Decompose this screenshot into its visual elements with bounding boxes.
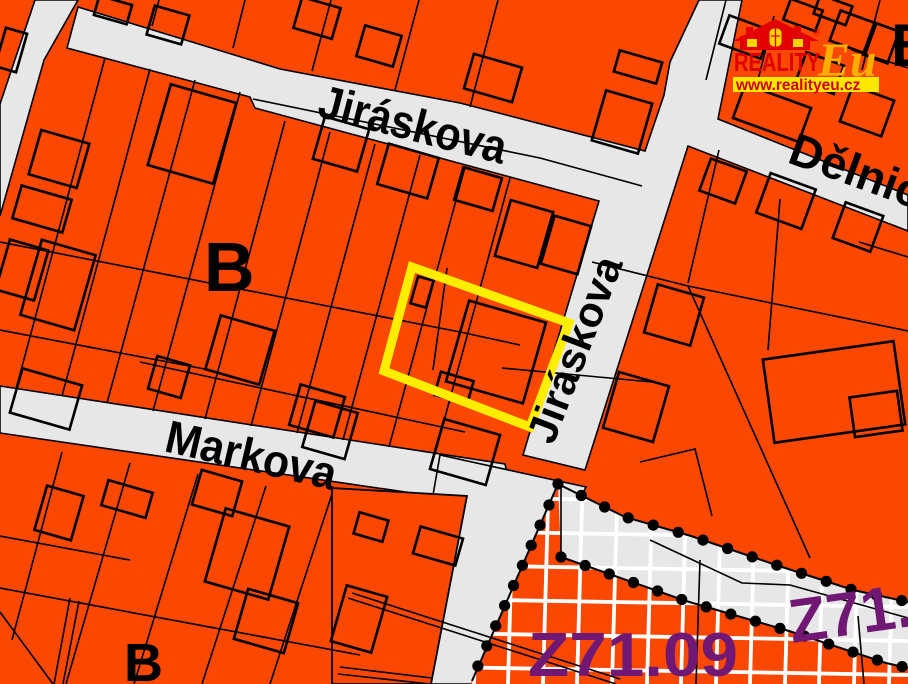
svg-text:Z71.09: Z71.09: [528, 621, 738, 684]
svg-text:B: B: [124, 633, 163, 684]
svg-text:B: B: [891, 12, 908, 79]
svg-text:REALITY: REALITY: [734, 47, 820, 77]
svg-text:www.realityeu.cz: www.realityeu.cz: [735, 77, 861, 94]
svg-text:B: B: [204, 228, 255, 306]
